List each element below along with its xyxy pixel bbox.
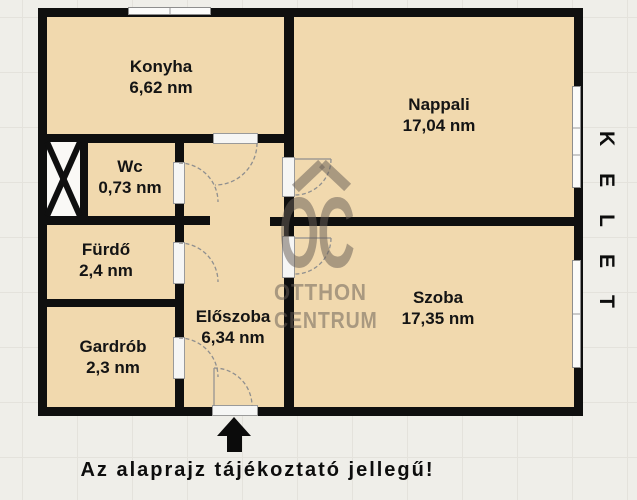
room-name: Szoba: [378, 287, 498, 308]
floorplan-canvas: OC OTTHON CENTRUM Konyha 6,62 nm Nappali…: [0, 0, 637, 500]
room-name: Gardrób: [53, 336, 173, 357]
door-kitchen: [213, 133, 258, 144]
wall-wc-bottom: [47, 216, 210, 225]
wall-outer-top: [38, 8, 583, 17]
room-label-room: Szoba 17,35 nm: [378, 287, 498, 329]
room-area: 6,62 nm: [101, 77, 221, 98]
wall-hall-left-4: [175, 377, 184, 407]
room-label-hall: Előszoba 6,34 nm: [173, 306, 293, 348]
room-area: 6,34 nm: [173, 327, 293, 348]
entrance-arrow-shaft: [227, 436, 242, 452]
wall-outer-bottom: [38, 407, 583, 416]
room-name: Fürdő: [46, 239, 166, 260]
room-label-bathroom: Fürdő 2,4 nm: [46, 239, 166, 281]
door-entrance: [212, 405, 258, 416]
room-label-wardrobe: Gardrób 2,3 nm: [53, 336, 173, 378]
room-label-kitchen: Konyha 6,62 nm: [101, 56, 221, 98]
window-kitchen: [128, 7, 211, 15]
room-name: Konyha: [101, 56, 221, 77]
room-area: 17,35 nm: [378, 308, 498, 329]
watermark-logo-text: OC: [279, 183, 353, 283]
entrance-arrow-icon: [217, 417, 251, 436]
disclaimer-caption: Az alaprajz tájékoztató jellegű!: [45, 459, 470, 482]
room-area: 0,73 nm: [70, 177, 190, 198]
wall-outer-left: [38, 8, 47, 416]
room-area: 2,4 nm: [46, 260, 166, 281]
room-label-wc: Wc 0,73 nm: [70, 156, 190, 198]
room-name: Előszoba: [173, 306, 293, 327]
room-area: 2,3 nm: [53, 357, 173, 378]
door-bathroom: [173, 242, 185, 284]
room-name: Wc: [70, 156, 190, 177]
window-livingroom: [572, 86, 581, 188]
window-room: [572, 260, 581, 368]
compass-direction-label: KELET: [594, 131, 618, 351]
wall-bath-wardrobe-divider: [47, 299, 184, 307]
room-name: Nappali: [379, 94, 499, 115]
watermark-brand-line1: OTTHON: [274, 280, 367, 304]
wall-hall-left-2: [175, 202, 184, 243]
wall-central-top: [284, 8, 294, 157]
room-label-livingroom: Nappali 17,04 nm: [379, 94, 499, 136]
room-area: 17,04 nm: [379, 115, 499, 136]
